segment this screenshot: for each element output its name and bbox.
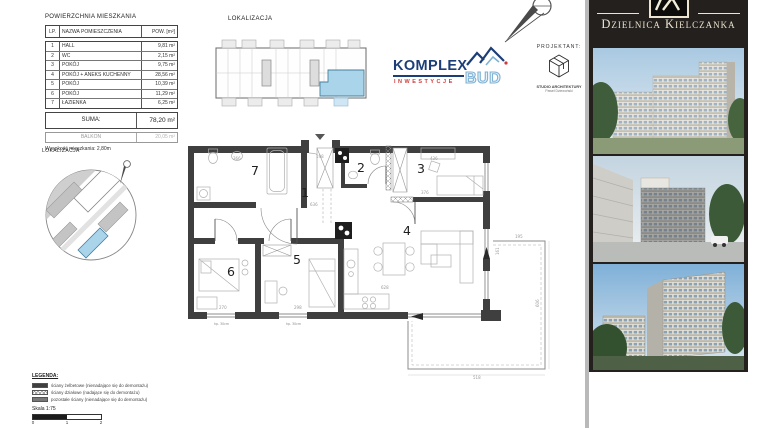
- brochure-page: POWIERZCHNIA MIESZKANIA LP. NAZWA POMIES…: [0, 0, 760, 428]
- svg-text:5: 5: [293, 252, 301, 267]
- svg-text:606: 606: [535, 299, 540, 307]
- svg-text:7: 7: [251, 163, 259, 178]
- building-render-photo-3: [593, 264, 744, 370]
- lokalizacja-top-title: LOKALIZACJA: [228, 16, 272, 22]
- svg-text:2: 2: [357, 160, 365, 175]
- svg-text:518: 518: [473, 375, 481, 380]
- floor-plan: 1 2 3 4 5 6 7 198 366 636 376 436 270 29…: [183, 131, 558, 396]
- col-name: NAZWA POMIESZCZENIA: [60, 26, 142, 37]
- svg-text:636: 636: [310, 202, 318, 207]
- komplex-wordmark: KOMPLEX: [393, 58, 468, 74]
- col-lp: LP.: [46, 26, 60, 37]
- svg-text:hp. 30cm: hp. 30cm: [214, 322, 229, 326]
- highlighted-balcony-tab: [334, 98, 348, 106]
- area-table-header: LP. NAZWA POMIESZCZENIA POW. [m²]: [45, 25, 178, 38]
- table-row: 6POKÓJ11,29 m²: [46, 90, 177, 100]
- suma-value: 78,20 m²: [137, 113, 177, 128]
- brand-rule-right: [698, 13, 740, 14]
- shaft-axis-lines: [323, 189, 331, 223]
- bud-wordmark: BUD: [465, 70, 501, 88]
- balkon-row: BALKON 20,05 m²: [45, 132, 178, 143]
- development-title: Dzielnica Kielczanka: [589, 17, 748, 32]
- balcony: [408, 241, 549, 375]
- table-row: 4POKÓJ + ANEKS KUCHENNY28,56 m²: [46, 71, 177, 81]
- building-overview-plan: [208, 30, 376, 122]
- scale-label: Skala 1:75: [32, 406, 202, 412]
- svg-text:628: 628: [381, 285, 389, 290]
- doors: [215, 153, 415, 244]
- svg-text:198: 198: [316, 154, 324, 159]
- brand-logo-icon: [649, 0, 689, 18]
- svg-text:4: 4: [403, 223, 411, 238]
- legend-item: ściany działowe (nadające się do demonta…: [32, 389, 202, 396]
- building-render-photo-2: [593, 156, 744, 262]
- projektant-label: PROJEKTANT:: [524, 44, 594, 50]
- svg-text:3: 3: [417, 161, 425, 176]
- brand-rule-left: [597, 13, 639, 14]
- legend: LEGENDA: ściany żelbetowe (nienadające s…: [32, 373, 202, 426]
- table-row: 1HALL9,81 m²: [46, 42, 177, 52]
- north-arrow-icon: [500, 0, 562, 46]
- svg-text:1: 1: [301, 185, 309, 200]
- area-table-title: POWIERZCHNIA MIESZKANIA: [45, 14, 178, 20]
- swatch-partition-wall: [32, 390, 48, 396]
- balcony-door-markers: [411, 247, 490, 320]
- lokalizacja-side-title: LOKALIZACJA: [42, 148, 80, 154]
- area-table: POWIERZCHNIA MIESZKANIA LP. NAZWA POMIES…: [45, 14, 178, 152]
- svg-text:298: 298: [294, 305, 302, 310]
- projektant-block: PROJEKTANT: STUDIO ARCHITEKTURY Paweł Dz…: [524, 44, 594, 106]
- svg-text:270: 270: [219, 305, 227, 310]
- brand-panel: Dzielnica Kielczanka: [589, 0, 748, 372]
- svg-text:161: 161: [495, 247, 500, 255]
- entrance-marker: [315, 134, 325, 140]
- scale-ticks: 0 1 2: [32, 420, 102, 426]
- svg-text:366: 366: [233, 156, 241, 161]
- logo-divider: [393, 75, 464, 77]
- inwestycje-wordmark: INWESTYCJE: [394, 79, 455, 85]
- legend-title: LEGENDA:: [32, 373, 202, 379]
- building-render-photo-1: [593, 48, 744, 154]
- table-row: 3POKÓJ9,75 m²: [46, 61, 177, 71]
- svg-text:436: 436: [430, 156, 438, 161]
- area-table-body: 1HALL9,81 m² 2WC2,15 m² 3POKÓJ9,75 m² 4P…: [45, 41, 178, 109]
- svg-text:hp. 30cm: hp. 30cm: [286, 322, 301, 326]
- col-area: POW. [m²]: [142, 26, 177, 37]
- svg-text:376: 376: [421, 190, 429, 195]
- swatch-solid-wall: [32, 383, 48, 389]
- swatch-other-wall: [32, 397, 48, 403]
- table-row: 5POKÓJ10,39 m²: [46, 80, 177, 90]
- balkon-value: 20,05 m²: [137, 133, 177, 142]
- suma-row: SUMA: 78,20 m²: [45, 112, 178, 129]
- svg-text:195: 195: [515, 234, 523, 239]
- legend-item: pozostałe ściany (nienadające się do dem…: [32, 396, 202, 403]
- table-row: 7ŁAZIENKA6,25 m²: [46, 99, 177, 108]
- architect-name: Paweł Dziewoński: [524, 89, 594, 93]
- architect-cube-icon: [546, 53, 572, 79]
- window-notes: hp. 30cm hp. 30cm: [214, 322, 301, 326]
- legend-item: ściany żelbetowe (nienadające się do dem…: [32, 382, 202, 389]
- north-arrow-small-icon: [118, 158, 134, 186]
- table-row: 2WC2,15 m²: [46, 52, 177, 62]
- house-roof-icon: [465, 42, 509, 68]
- ventilation-shafts: [335, 148, 352, 239]
- svg-text:6: 6: [227, 264, 235, 279]
- komplex-bud-logo: KOMPLEX INWESTYCJE BUD: [393, 46, 511, 100]
